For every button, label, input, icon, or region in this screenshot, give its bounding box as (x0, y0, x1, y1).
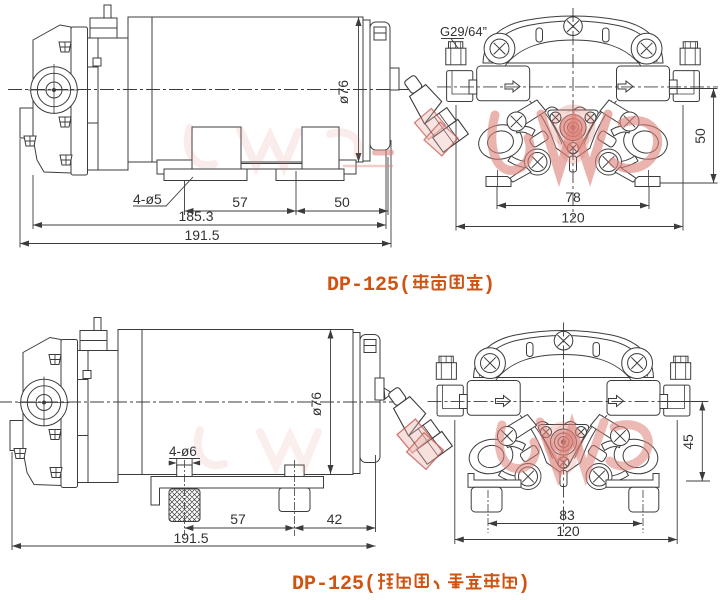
svg-text:4-ø5: 4-ø5 (133, 191, 162, 207)
svg-text:191.5: 191.5 (184, 227, 219, 243)
svg-text:DP-125(: DP-125( (292, 573, 376, 596)
svg-text:G29/64”: G29/64” (440, 24, 487, 39)
svg-text:185.3: 185.3 (178, 208, 213, 224)
svg-text:ø76: ø76 (308, 392, 324, 416)
svg-text:120: 120 (556, 523, 580, 539)
svg-text:78: 78 (565, 189, 581, 205)
svg-text:4-ø6: 4-ø6 (169, 444, 197, 459)
svg-text:191.5: 191.5 (173, 530, 208, 546)
svg-text:120: 120 (561, 210, 585, 226)
svg-text:ø76: ø76 (335, 80, 351, 104)
svg-text:42: 42 (327, 511, 343, 527)
svg-text:57: 57 (232, 194, 248, 210)
svg-text:): ) (518, 573, 530, 596)
svg-text:50: 50 (334, 194, 350, 210)
svg-text:DP-125(: DP-125( (327, 274, 411, 297)
svg-text:83: 83 (559, 507, 575, 523)
svg-text:): ) (483, 274, 495, 297)
svg-text:50: 50 (692, 128, 708, 144)
svg-text:57: 57 (230, 511, 246, 527)
svg-text:45: 45 (680, 434, 696, 450)
